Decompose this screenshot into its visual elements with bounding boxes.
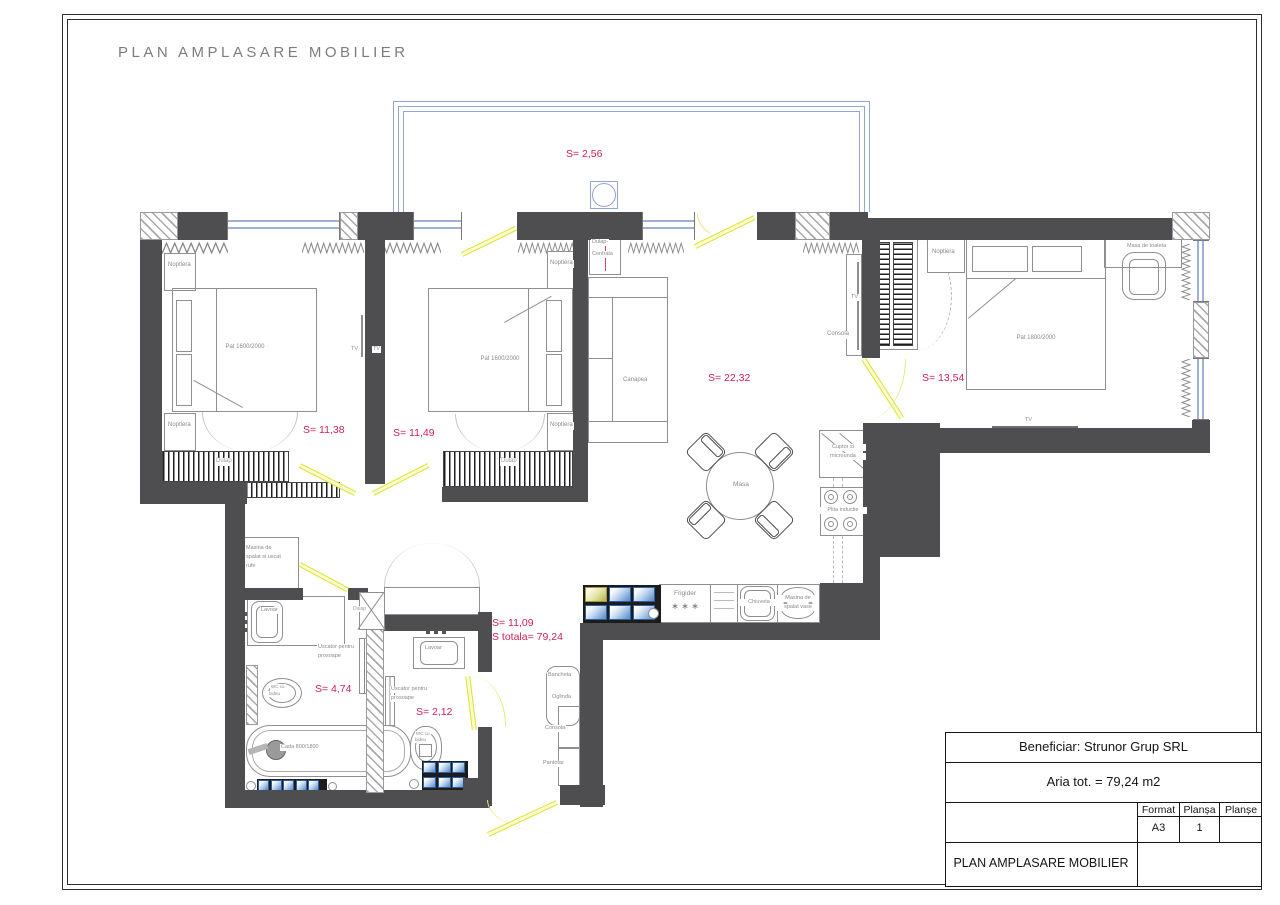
hall-closet — [384, 587, 480, 615]
fridge-label: Frigider — [661, 590, 709, 598]
balcony-table-top — [592, 183, 616, 207]
area-label-master: S= 13,54 — [922, 372, 964, 384]
wall-corner-right — [1192, 420, 1210, 453]
wardrobe-label: Dulap — [215, 458, 233, 466]
nightstand — [164, 253, 196, 291]
nightstand-label: Noptiera — [549, 422, 574, 430]
wall-entrance-right — [560, 785, 605, 805]
nightstand-label: Noptiera — [167, 422, 192, 430]
wall-wc-top — [382, 615, 480, 631]
counter-dashed — [833, 478, 843, 487]
wall-pier-hatched — [340, 212, 358, 240]
counter-divider — [710, 584, 711, 623]
console-table — [846, 254, 862, 356]
towel-radiator-label2: prosoape — [317, 653, 342, 660]
towel-radiator-label2: prosoape — [390, 695, 415, 702]
plansa-value: 1 — [1180, 822, 1219, 834]
sofa-line — [588, 358, 613, 359]
window-living — [642, 212, 695, 240]
hob-burner — [824, 517, 838, 531]
window-master-bottom — [1193, 358, 1209, 420]
wall-pier-hatched — [795, 212, 830, 240]
dishwasher-label2: spalat vase — [777, 604, 819, 611]
wardrobe — [443, 451, 573, 487]
shaft-label: Dulap — [352, 606, 367, 612]
wardrobe-shelves — [893, 242, 913, 346]
area-label-bedroom2: S= 11,49 — [393, 427, 435, 439]
bed-pillow — [546, 300, 562, 352]
wc-tile — [438, 777, 451, 788]
hob-label: Plita inductie — [819, 507, 867, 514]
area-label-bathroom: S= 4,74 — [315, 683, 352, 695]
nightstand — [164, 413, 196, 451]
counter-line — [714, 608, 734, 609]
wall-pier-hatched — [140, 212, 178, 240]
wall-kitchen-bottom — [580, 623, 880, 640]
titleblock-plan-name: PLAN AMPLASARE MOBILIER — [945, 856, 1137, 870]
area-label-bedroom1: S= 11,38 — [303, 424, 345, 436]
wc-tile — [423, 777, 436, 788]
radiator-zigzag-vertical — [1181, 244, 1191, 300]
hob-burner — [843, 490, 857, 504]
tv-label: TV — [350, 346, 359, 353]
dining-table-label: Masa — [725, 481, 757, 489]
wall-dot — [442, 630, 446, 634]
dishwasher-label: Masina de — [777, 595, 819, 602]
bed-pillow — [176, 354, 192, 406]
wall-bath-bottom — [225, 790, 490, 808]
towel-radiator-label: Uscator pentru — [317, 644, 355, 651]
console-label: Consola — [826, 331, 850, 339]
wall-hall-right — [580, 625, 603, 807]
radiator-zigzag — [803, 242, 859, 254]
wall-dot — [426, 630, 430, 634]
drawing-sheet: PLAN AMPLASARE MOBILIER S= 2,56 — [0, 0, 1280, 905]
format-label: Format — [1138, 804, 1179, 816]
wall-living-left — [573, 237, 588, 502]
toilet-label: WC cu — [415, 731, 431, 737]
cabinet-knob — [648, 608, 659, 619]
area-label-balcony: S= 2,56 — [566, 148, 603, 160]
wc-tiles — [422, 761, 468, 792]
vanity-chair-seat — [1129, 259, 1159, 295]
tile-knob — [409, 779, 419, 789]
window-master-top — [1193, 240, 1209, 302]
wall-segment — [358, 212, 413, 240]
shoe-cabinet-label: Pantofar — [542, 760, 565, 767]
fridge-frost-symbols: ∗ ∗ ∗ — [661, 601, 709, 612]
counter-line — [714, 600, 734, 601]
tv-line — [857, 262, 859, 350]
area-label-hall: S= 11,09 — [492, 617, 534, 629]
wc-tile — [452, 762, 465, 773]
bed-label: Pat 1800/2000 — [976, 335, 1096, 343]
nightstand-label: Noptiera — [931, 249, 956, 257]
planse-label: Planșe — [1220, 804, 1262, 816]
toilet-flush — [419, 744, 432, 757]
nightstand-label: Noptiera — [549, 260, 574, 268]
console-hall-label: Consola — [544, 725, 566, 732]
titleblock-area: Aria tot. = 79,24 m2 — [945, 774, 1262, 789]
wall-bath-left — [225, 504, 245, 794]
boiler-closet-label2: Centrala — [591, 251, 614, 258]
wall-bedroom1-bottom — [140, 482, 247, 504]
toilet-label2: bideu — [268, 691, 281, 697]
titleblock-line — [945, 842, 1262, 843]
area-label-living: S= 22,32 — [708, 372, 750, 384]
cabinet-tile — [585, 587, 607, 602]
nightstand-label: Noptiera — [167, 262, 192, 270]
sofa — [588, 277, 668, 443]
wall-kitchen-corner — [820, 583, 880, 623]
wall-corner-hatched — [1172, 212, 1210, 240]
sofa-line — [612, 297, 613, 422]
washer-label: Masina de — [246, 545, 271, 552]
towel-radiator-label: Uscator pentru — [390, 686, 428, 693]
sofa-line — [588, 297, 668, 298]
bathtub-label: Cada 800/1800 — [280, 744, 320, 751]
shoe-cabinet — [558, 748, 580, 786]
cabinet-tile — [609, 587, 631, 602]
radiator-zigzag — [628, 242, 684, 254]
area-label-total: S totala= 79,24 — [492, 631, 563, 643]
mirror-label: Oglinda — [551, 694, 572, 701]
cabinet-tile — [633, 587, 655, 602]
wc-tile — [438, 762, 451, 773]
vanity-label: Masa de toaleta — [1126, 243, 1167, 250]
titleblock-line — [1137, 816, 1262, 817]
wall-bedroom-divider — [365, 240, 385, 484]
toilet-label2: bideu — [414, 737, 427, 743]
wall-bath-top — [245, 588, 303, 600]
bed-blanket-edge — [967, 278, 1105, 279]
washer-label3: rufe — [246, 563, 255, 570]
wall-master-left — [862, 218, 880, 358]
boiler-closet-label: Dulap- — [591, 239, 609, 246]
wall-kitchen-right — [863, 557, 880, 585]
bed-pillow — [1032, 246, 1082, 272]
hob-burner — [824, 490, 838, 504]
wall-segment — [517, 212, 642, 240]
area-label-wc: S= 2,12 — [416, 706, 453, 718]
tv-label: TV — [1024, 417, 1033, 424]
wall-segment — [178, 212, 227, 240]
counter-line — [714, 592, 734, 593]
wall-dot — [434, 630, 438, 634]
wall-bath-pier-hatched — [246, 665, 258, 725]
drawing-title: PLAN AMPLASARE MOBILIER — [118, 44, 409, 61]
counter-dashed — [833, 536, 843, 583]
wardrobe — [162, 451, 289, 482]
wall-segment — [757, 212, 795, 240]
titleblock-client: Beneficiar: Strunor Grup SRL — [945, 739, 1262, 754]
balcony-outline-3 — [403, 111, 860, 212]
window-bedroom1 — [227, 212, 340, 240]
wc-tile — [423, 762, 436, 773]
radiator-zigzag-vertical — [1181, 359, 1191, 417]
wall-wc-right-top — [478, 612, 492, 672]
toilet-label: WC cu — [270, 684, 286, 690]
wall-left — [140, 240, 162, 484]
tv-label: TV — [850, 294, 859, 301]
window-bedroom2 — [413, 212, 462, 240]
tv-label: TV — [372, 346, 381, 353]
wardrobe — [240, 482, 340, 498]
bench-label: Bancheta — [547, 672, 572, 679]
wall-wc-right-bottom — [478, 727, 492, 780]
washbasin-label: Lavoar — [260, 607, 279, 614]
cabinet-tile — [585, 605, 607, 620]
wall-master-bottom — [880, 428, 1210, 453]
wall-bedroom2-bottom — [442, 487, 578, 502]
oven-label2: microunda — [820, 453, 866, 460]
wall-master-top — [868, 218, 1172, 240]
plansa-label: Planșa — [1180, 804, 1219, 816]
sink-label: Chiuveta — [738, 599, 780, 606]
radiator-zigzag — [302, 242, 364, 254]
oven-label: Cuptor si — [820, 444, 866, 451]
titleblock-line — [945, 762, 1262, 763]
wall-pier-hatched-right — [1193, 302, 1209, 358]
wall-bath-divider-hatched — [366, 629, 384, 793]
bed-label: Pat 1600/2000 — [435, 356, 565, 364]
format-value: A3 — [1138, 822, 1179, 834]
cabinet-tile — [609, 605, 631, 620]
bed-pillow — [972, 246, 1028, 272]
washbasin-label: Lavoar — [424, 645, 443, 652]
washer-label2: spalat si uscat — [246, 554, 281, 561]
wardrobe-label: Dulap — [500, 458, 518, 466]
sofa-label: Canapea — [622, 377, 648, 385]
tv-bracket — [361, 315, 363, 357]
hob-burner — [843, 517, 857, 531]
sofa-line — [588, 421, 668, 422]
bed-label: Pat 1600/2000 — [180, 344, 310, 352]
